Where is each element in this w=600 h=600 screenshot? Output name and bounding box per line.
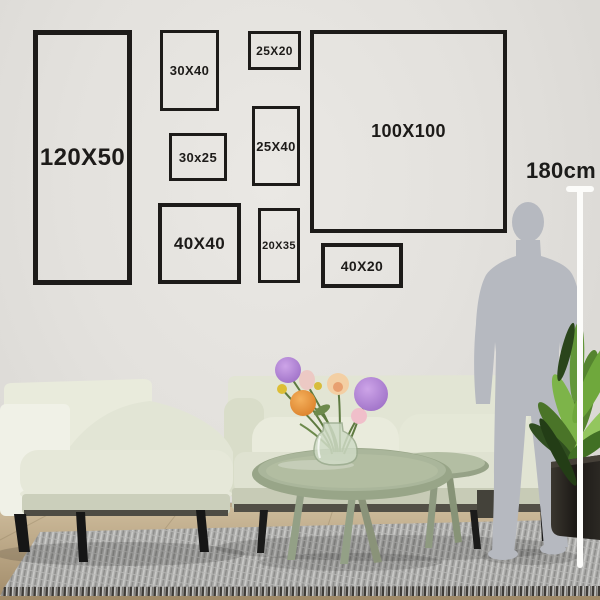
craspedia-flower <box>314 382 322 390</box>
plant-pot <box>551 455 600 540</box>
table-shadow <box>258 553 442 571</box>
allium-flower <box>275 357 301 383</box>
measuring-line-bar <box>577 188 583 568</box>
pincushion-flower <box>290 390 316 416</box>
allium-flower <box>354 377 388 411</box>
tulip-flower <box>299 370 315 390</box>
living-room-scene <box>0 0 600 600</box>
gallery-wall-size-guide: 120X50 30X40 25X20 30x25 25X40 40X40 20X… <box>0 0 600 600</box>
craspedia-flower <box>277 384 287 394</box>
rug-fringe <box>0 586 600 597</box>
pink-bud <box>351 408 367 424</box>
